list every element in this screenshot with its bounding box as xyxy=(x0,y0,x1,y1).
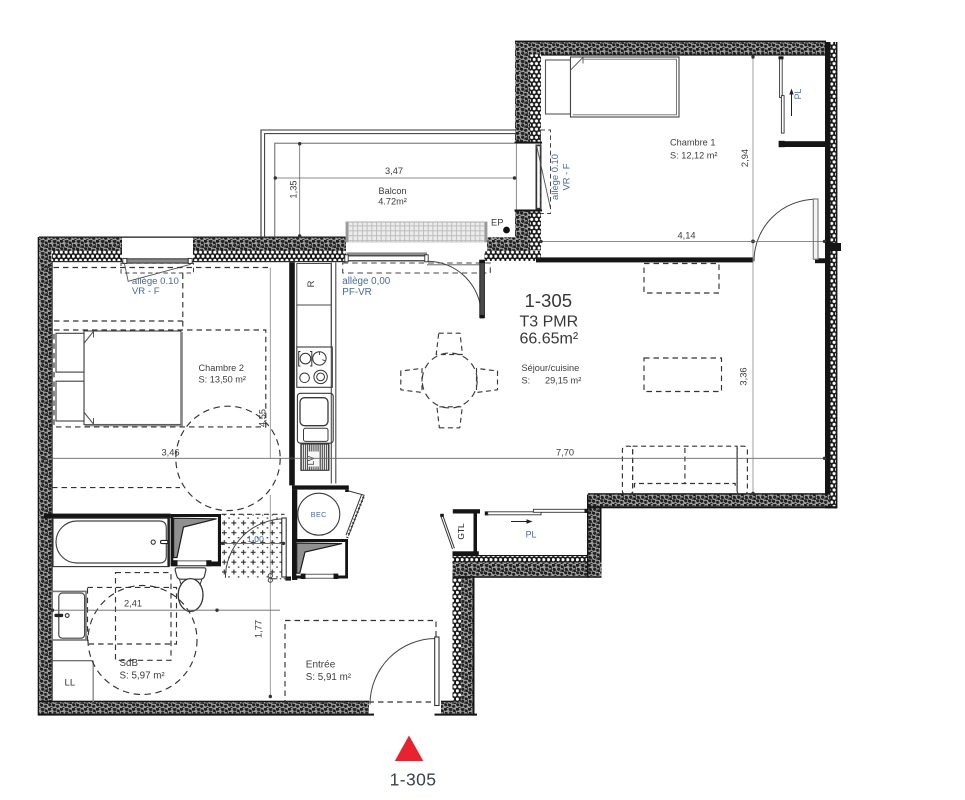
svg-text:Chambre 1: Chambre 1 xyxy=(670,138,715,148)
svg-text:4.72m²: 4.72m² xyxy=(378,197,407,207)
svg-text:1,00: 1,00 xyxy=(247,534,264,544)
svg-text:PF-VR: PF-VR xyxy=(342,287,371,298)
svg-text:VR - F: VR - F xyxy=(561,163,572,190)
svg-text:Séjour/cuisine: Séjour/cuisine xyxy=(522,363,580,373)
svg-text:2,41: 2,41 xyxy=(124,599,142,609)
svg-text:T3 PMR: T3 PMR xyxy=(520,314,579,331)
svg-text:3,47: 3,47 xyxy=(385,166,403,176)
svg-text:S: 13,50 m²: S: 13,50 m² xyxy=(199,375,247,385)
svg-text:GTL: GTL xyxy=(456,523,466,540)
svg-text:1,77: 1,77 xyxy=(254,620,264,638)
svg-text:LL: LL xyxy=(65,678,76,689)
svg-text:BEC: BEC xyxy=(311,510,327,519)
svg-text:PL: PL xyxy=(793,89,803,100)
svg-text:1-305: 1-305 xyxy=(390,770,437,790)
svg-text:2,94: 2,94 xyxy=(740,149,750,167)
svg-text:3,46: 3,46 xyxy=(161,448,179,458)
svg-text:3,36: 3,36 xyxy=(739,367,749,385)
svg-text:66.65m²: 66.65m² xyxy=(520,331,579,348)
svg-text:4,14: 4,14 xyxy=(677,231,695,241)
svg-text:R: R xyxy=(305,280,316,287)
svg-text:SdB: SdB xyxy=(120,658,139,669)
svg-text:allège 0.10: allège 0.10 xyxy=(549,154,560,200)
svg-text:EP: EP xyxy=(491,218,503,228)
svg-text:4,55: 4,55 xyxy=(258,409,268,427)
svg-text:allège 0,00: allège 0,00 xyxy=(342,276,390,287)
svg-text:Chambre 2: Chambre 2 xyxy=(199,363,244,373)
svg-text:29,15 m²: 29,15 m² xyxy=(545,376,581,386)
svg-text:LV: LV xyxy=(307,455,316,465)
svg-text:7,70: 7,70 xyxy=(556,448,574,458)
svg-text:PL: PL xyxy=(526,530,537,540)
svg-text:S:: S: xyxy=(522,376,531,386)
svg-text:S: 5,91 m²: S: 5,91 m² xyxy=(306,672,352,683)
svg-text:S: 12,12 m²: S: 12,12 m² xyxy=(670,151,718,161)
svg-text:Balcon: Balcon xyxy=(378,186,406,196)
svg-text:VR - F: VR - F xyxy=(132,286,160,297)
svg-text:S: 5,97 m²: S: 5,97 m² xyxy=(120,671,166,682)
svg-text:Entrée: Entrée xyxy=(306,660,336,671)
svg-text:1,35: 1,35 xyxy=(289,180,299,198)
svg-text:1-305: 1-305 xyxy=(525,290,573,311)
